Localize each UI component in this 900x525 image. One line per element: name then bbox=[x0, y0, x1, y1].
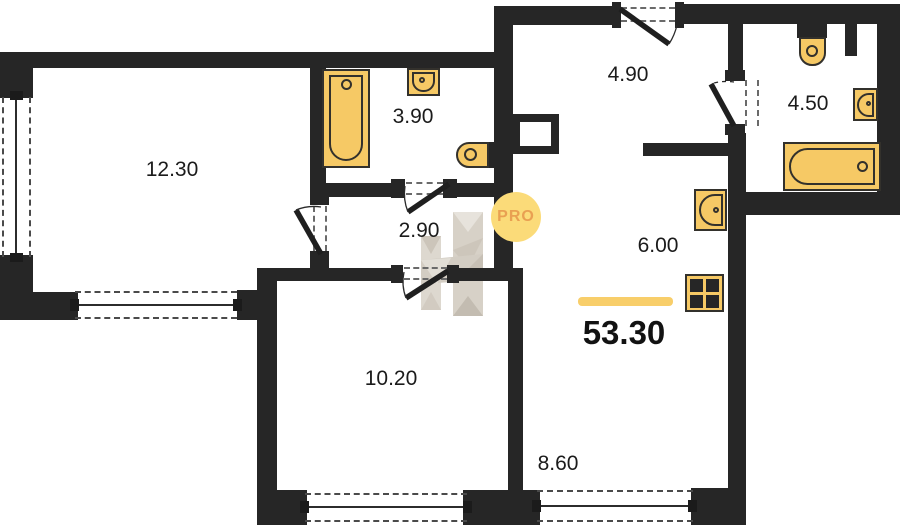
door-swings bbox=[0, 0, 900, 525]
pro-badge: PRO bbox=[491, 192, 541, 242]
pro-badge-text: PRO bbox=[497, 208, 535, 226]
floor-plan: 12.30 3.90 2.90 4.90 4.50 6.00 10.20 8.6… bbox=[0, 0, 900, 525]
